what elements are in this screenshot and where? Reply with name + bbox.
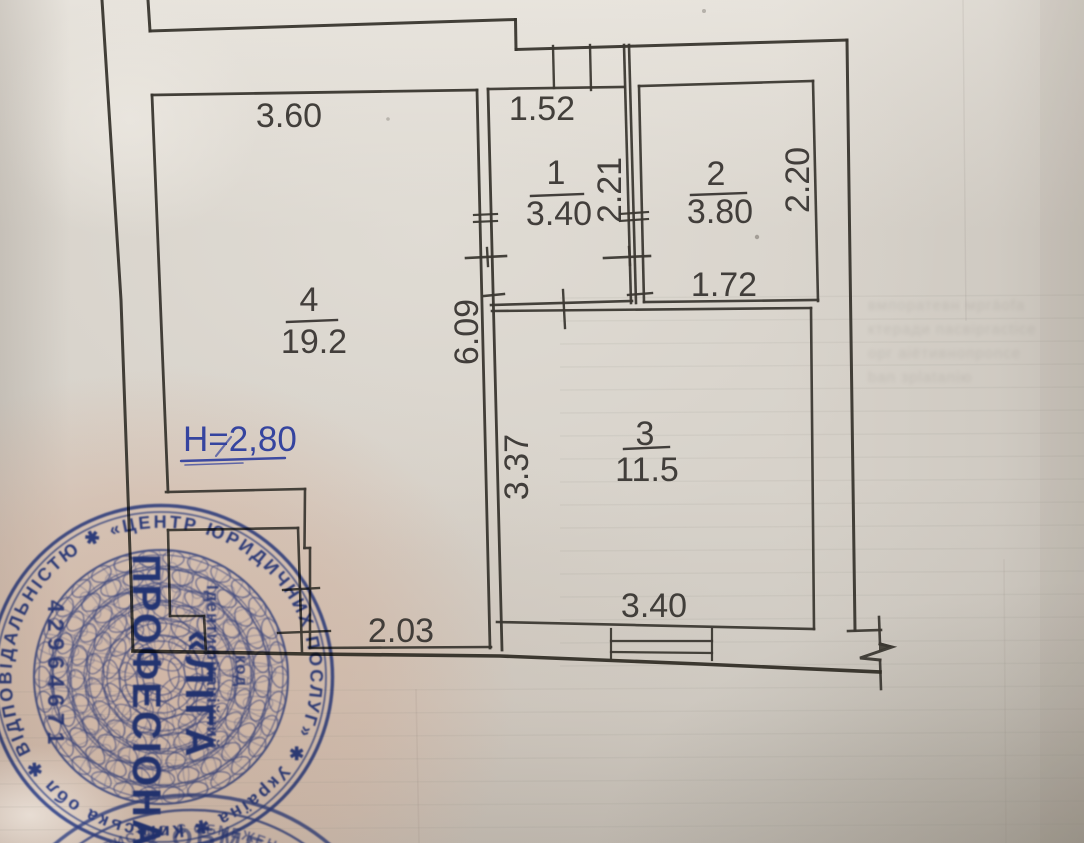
svg-text:4: 4	[300, 281, 319, 319]
svg-text:3.40: 3.40	[621, 587, 687, 625]
svg-text:19.2: 19.2	[281, 323, 347, 361]
svg-text:42964671: 42964671	[43, 600, 69, 750]
svg-text:1: 1	[547, 154, 566, 192]
svg-text:2: 2	[707, 155, 726, 193]
svg-text:3.80: 3.80	[687, 193, 753, 231]
svg-text:1.52: 1.52	[509, 90, 575, 128]
svg-text:3.60: 3.60	[256, 97, 322, 135]
svg-text:6.09: 6.09	[448, 299, 486, 365]
svg-text:ктеради пасвіpractice: ктеради пасвіpractice	[868, 321, 1037, 338]
svg-text:ban зplatanію: ban зplatanію	[868, 369, 973, 386]
svg-text:2.21: 2.21	[591, 157, 629, 223]
svg-text:Ідентифікаційний: Ідентифікаційний	[203, 585, 222, 749]
svg-text:2.20: 2.20	[779, 147, 817, 213]
svg-text:1.72: 1.72	[691, 266, 757, 304]
svg-text:3.40: 3.40	[526, 195, 592, 233]
svg-text:вмпоратевн мpräofа: вмпоратевн мpräofа	[868, 297, 1025, 314]
svg-text:3.37: 3.37	[498, 434, 536, 500]
svg-text:H=2,80: H=2,80	[183, 420, 297, 459]
svg-text:11.5: 11.5	[615, 451, 679, 489]
svg-text:2.03: 2.03	[368, 612, 434, 650]
svg-text:орг аіëтивнопрonce: орг аіëтивнопрonce	[868, 345, 1021, 362]
svg-text:код: код	[232, 655, 251, 687]
